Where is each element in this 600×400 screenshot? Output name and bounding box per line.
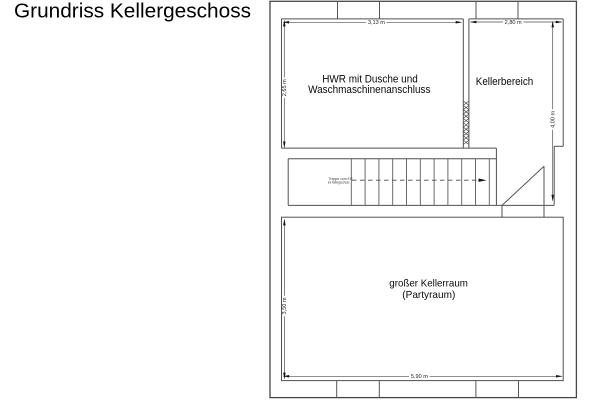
svg-text:2,80 m: 2,80 m bbox=[505, 20, 522, 26]
svg-text:4,00 m: 4,00 m bbox=[551, 111, 557, 128]
svg-text:2,65 m: 2,65 m bbox=[282, 79, 288, 96]
svg-text:ins Kellergeschoss: ins Kellergeschoss bbox=[328, 181, 350, 185]
svg-text:Waschmaschinenanschluss: Waschmaschinenanschluss bbox=[308, 84, 431, 96]
svg-text:(Partyraum): (Partyraum) bbox=[402, 289, 455, 301]
svg-text:Kellerbereich: Kellerbereich bbox=[476, 76, 534, 88]
svg-text:5,90 m: 5,90 m bbox=[411, 374, 428, 380]
svg-text:großer Kellerraum: großer Kellerraum bbox=[389, 277, 468, 289]
svg-text:3,13 m: 3,13 m bbox=[368, 20, 385, 26]
svg-text:3,50 m: 3,50 m bbox=[282, 298, 288, 315]
svg-text:Grundriss Kellergeschoss: Grundriss Kellergeschoss bbox=[14, 0, 251, 22]
